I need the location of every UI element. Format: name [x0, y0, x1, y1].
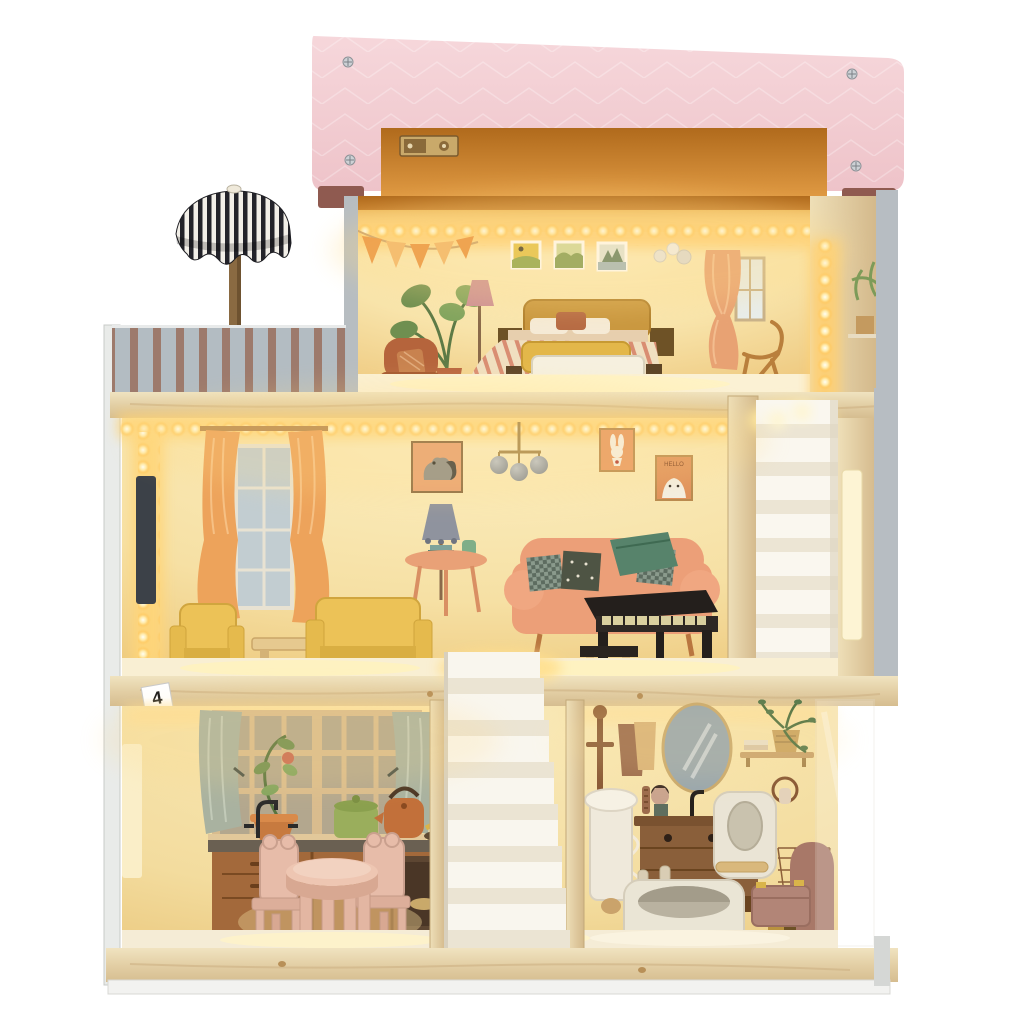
stair-post	[728, 396, 758, 684]
striped-parasol	[176, 185, 291, 332]
attic-bedroom	[344, 190, 898, 408]
oval-mirror	[663, 704, 731, 792]
left-wall-window	[122, 744, 142, 878]
living-curtain-window	[197, 426, 329, 624]
base-front-edge	[108, 980, 890, 994]
right-base-edge	[874, 936, 890, 986]
balcony-railing	[112, 325, 346, 393]
living-right-wall	[838, 418, 878, 676]
roof-hinge	[400, 136, 458, 156]
hanging-towels	[618, 722, 656, 776]
rabbit-picture	[600, 429, 634, 471]
stair-post-right	[566, 700, 584, 950]
parasol-knob	[227, 185, 241, 193]
washing-machine	[714, 792, 776, 878]
attic-led-string	[352, 224, 834, 246]
tv	[136, 476, 156, 604]
piano-bench	[580, 646, 638, 657]
attic-left-edge	[344, 196, 358, 392]
attic-led-column	[814, 238, 836, 408]
right-outer-wall-mid	[874, 388, 898, 680]
attic-wall-pictures	[512, 242, 626, 270]
bear-picture: HELLO	[656, 456, 692, 500]
dollhouse-scene: HELLO	[0, 0, 1024, 1024]
parasol-canopy	[176, 191, 291, 264]
stair-post-left	[430, 700, 446, 950]
right-outer-wall-top	[876, 190, 898, 388]
dollhouse-product-photo: HELLO	[0, 0, 1024, 1024]
left-outer-wall	[104, 325, 120, 985]
living-room: HELLO	[110, 388, 898, 684]
bathroom	[585, 700, 874, 951]
right-white-staircase	[748, 400, 838, 666]
svg-text:HELLO: HELLO	[664, 462, 684, 468]
dog-picture	[412, 442, 462, 492]
